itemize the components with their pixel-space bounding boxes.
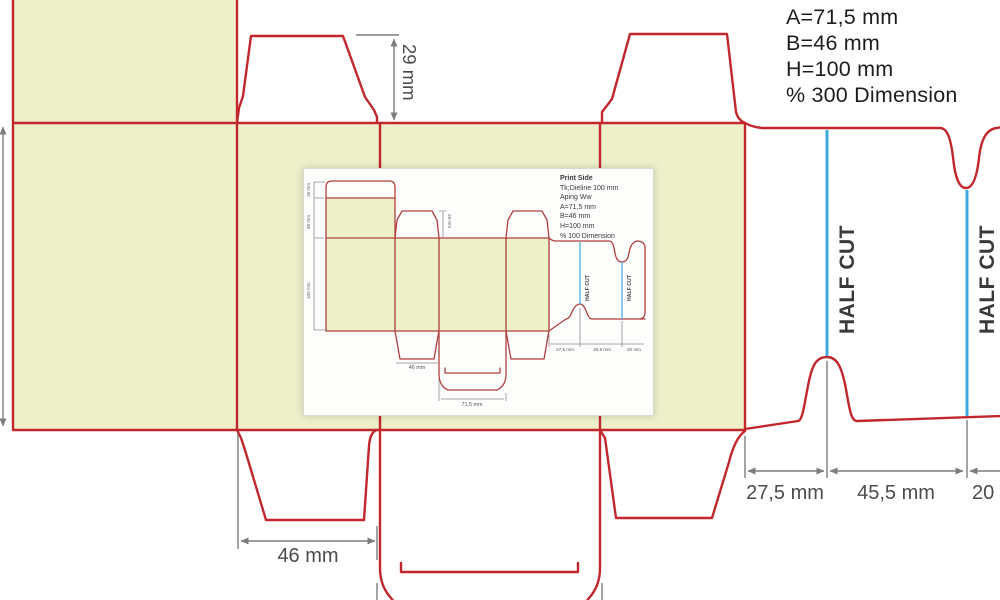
inset-glue-dims <box>549 308 644 347</box>
screenshot-canvas: { "colors": { "cut_line": "#c1272d", "pa… <box>0 0 1000 600</box>
inset-text-line-2: Tk;Dieline 100 mm <box>560 184 618 194</box>
top-flap-2-outline <box>602 34 745 123</box>
tuck-flap-outline <box>380 430 600 600</box>
inset-glue-bottom <box>549 304 645 331</box>
inset-text-line-7: % 100 Dimension <box>560 232 618 242</box>
inset-text-line-6: H=100 mm <box>560 222 618 232</box>
inset-text-line-4: A=71,5 mm <box>560 203 618 213</box>
inset-bottom-flap-2 <box>506 331 549 359</box>
inset-left-dim-label-2: 46 mm <box>306 215 311 229</box>
inset-body-fill <box>326 238 549 331</box>
inset-lid-fill <box>326 198 395 238</box>
inset-panel-fills <box>326 198 549 331</box>
bottom-flap-2-outline <box>600 430 745 518</box>
top-flap-1-outline <box>237 36 377 123</box>
inset-tuck-slit <box>445 368 500 373</box>
info-line-h: H=100 mm <box>786 56 958 82</box>
glue-dim-label-1: 27,5 mm <box>739 482 831 505</box>
inset-text-line-1: Print Side <box>560 174 618 184</box>
glue-top-edge <box>745 123 1000 188</box>
top-flap-dim-label: 29 mm <box>398 44 420 101</box>
inset-left-dim-label-1: 16 mm <box>306 183 311 197</box>
inset-bottom-flap-dim-label: 46 mm <box>399 365 435 371</box>
bottom-flap-1-outline <box>237 430 377 520</box>
inset-text-block: Print Side Tk;Dieline 100 mm Aping Ww A=… <box>560 174 618 241</box>
info-line-a: A=71,5 mm <box>786 4 958 30</box>
inset-lid-flap <box>326 181 395 198</box>
inset-half-cut-label-2: HALF CUT <box>627 275 633 301</box>
inset-top-flap-2 <box>506 211 549 238</box>
inset-glue-dim-label-2: 45,5 mm <box>588 347 616 352</box>
inset-tuck-dim-label: 71,5 mm <box>452 402 492 408</box>
inset-text-line-5: B=46 mm <box>560 212 618 222</box>
inset-glue-dim-label-3: 20 mm <box>622 347 646 352</box>
inset-left-dim <box>314 182 325 330</box>
lid-panel-fill <box>13 0 237 123</box>
inset-bottom-flap-1 <box>395 331 439 359</box>
info-line-b: B=46 mm <box>786 30 958 56</box>
glue-dim-label-2: 45,5 mm <box>850 482 942 505</box>
info-line-scale: % 300 Dimension <box>786 82 958 108</box>
inset-left-dim-label-3: 100 mm <box>306 282 311 299</box>
glue-dim-label-3: 20 mm <box>972 482 1000 505</box>
half-cut-label-2: HALF CUT <box>976 225 1000 334</box>
inset-flap-dim <box>439 211 446 237</box>
bottom-flap-dim-label: 46 mm <box>262 545 354 568</box>
inset-preview-image: Print Side Tk;Dieline 100 mm Aping Ww A=… <box>303 168 654 416</box>
glue-bottom-edge <box>745 357 1000 429</box>
half-cut-label-1: HALF CUT <box>836 225 860 334</box>
tuck-slit-line <box>401 563 578 572</box>
inset-tuck-flap <box>439 331 506 390</box>
dimension-info-panel: A=71,5 mm B=46 mm H=100 mm % 300 Dimensi… <box>786 4 958 108</box>
inset-top-flap-1 <box>395 211 439 238</box>
inset-glue-dim-label-1: 27,5 mm <box>551 347 579 352</box>
tuck-dim-ext <box>377 583 602 600</box>
inset-top-flap-dim-label: 29 mm <box>447 214 452 228</box>
inset-text-line-3: Aping Ww <box>560 193 618 203</box>
inset-half-cut-label-1: HALF CUT <box>585 275 591 301</box>
